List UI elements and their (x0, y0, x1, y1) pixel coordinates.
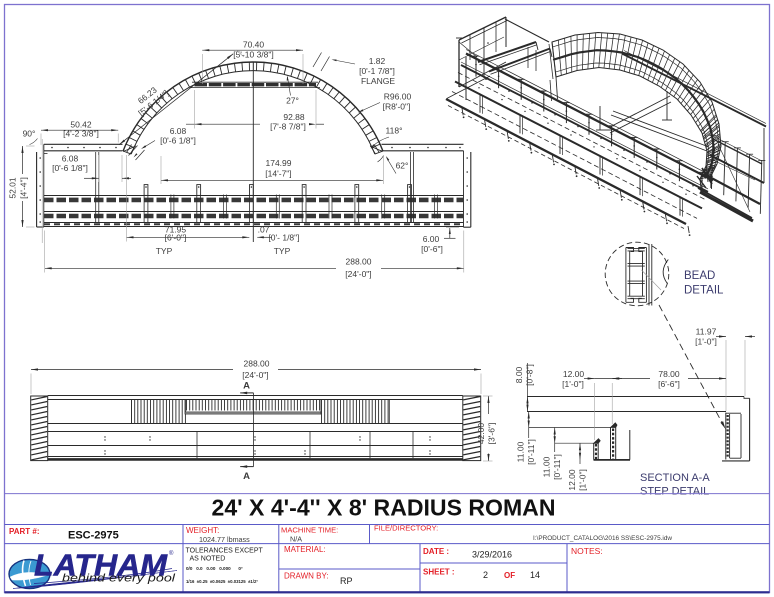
svg-text:[1'-0"]: [1'-0"] (562, 379, 584, 389)
svg-text:12.00: 12.00 (567, 469, 577, 491)
svg-text:WEIGHT:: WEIGHT: (186, 526, 219, 535)
svg-text:12.00: 12.00 (563, 369, 585, 379)
svg-text:TYP: TYP (274, 246, 291, 256)
svg-text:[24'-0"]: [24'-0"] (242, 370, 268, 380)
svg-text:288.00: 288.00 (244, 358, 270, 368)
svg-text:R96.00: R96.00 (384, 92, 412, 102)
svg-text:TYP: TYP (156, 246, 173, 256)
svg-text:42.00: 42.00 (476, 423, 486, 445)
svg-text:[0'-11"]: [0'-11"] (526, 439, 536, 465)
svg-text:[6'-6"]: [6'-6"] (658, 379, 680, 389)
svg-text:[1'-0"]: [1'-0"] (578, 469, 588, 491)
svg-text:11.00: 11.00 (516, 441, 526, 462)
svg-text:92.88: 92.88 (283, 112, 305, 122)
svg-text:[R8'-0"]: [R8'-0"] (383, 102, 411, 112)
svg-text:SECTION A-A: SECTION A-A (640, 472, 710, 484)
svg-text:SHEET :: SHEET : (423, 568, 455, 577)
svg-text:27°: 27° (286, 96, 299, 106)
svg-text:®: ® (169, 550, 174, 557)
svg-text:A: A (243, 380, 250, 391)
svg-text:52.01: 52.01 (8, 177, 18, 199)
svg-text:behind every pool: behind every pool (62, 573, 176, 585)
svg-text:24' X 4'-4'' X 8' RADIUS ROMAN: 24' X 4'-4'' X 8' RADIUS ROMAN (212, 495, 556, 521)
svg-text:N/A: N/A (290, 535, 302, 544)
svg-text:90°: 90° (23, 129, 36, 139)
svg-text:OF: OF (504, 571, 515, 580)
svg-text:[0'-6"]: [0'-6"] (421, 244, 443, 254)
svg-text:PART #:: PART #: (9, 527, 40, 536)
svg-text:[0'-1 7/8"]: [0'-1 7/8"] (359, 66, 395, 76)
svg-text:NOTES:: NOTES: (571, 546, 603, 556)
svg-text:288.00: 288.00 (346, 257, 372, 267)
svg-text:DETAIL: DETAIL (684, 285, 724, 297)
svg-text:[6'-0"]: [6'-0"] (165, 233, 187, 243)
svg-text:[5'-10 3/8"]: [5'-10 3/8"] (233, 49, 274, 59)
svg-text:DRAWN BY:: DRAWN BY: (284, 572, 329, 581)
svg-text:78.00: 78.00 (658, 369, 680, 379)
svg-text:6.00: 6.00 (423, 234, 440, 244)
svg-text:[7'-8 7/8"]: [7'-8 7/8"] (270, 122, 306, 132)
svg-text:62°: 62° (396, 161, 409, 171)
svg-text:14: 14 (530, 570, 540, 580)
svg-text:AS NOTED: AS NOTED (190, 556, 226, 563)
svg-text:MATERIAL:: MATERIAL: (284, 545, 326, 554)
svg-text:MACHINE TIME:: MACHINE TIME: (281, 526, 338, 535)
svg-text:[0'- 1/8"]: [0'- 1/8"] (268, 233, 299, 243)
svg-text:[0'-8"]: [0'-8"] (525, 364, 535, 386)
svg-text:RP: RP (340, 576, 353, 586)
svg-text:[1'-0"]: [1'-0"] (695, 336, 717, 346)
svg-text:70.40: 70.40 (243, 40, 265, 50)
svg-text:FILE/DIRECTORY:: FILE/DIRECTORY: (374, 524, 438, 533)
svg-text:174.99: 174.99 (266, 158, 292, 168)
svg-text:BEAD: BEAD (684, 270, 715, 282)
svg-text:2: 2 (483, 570, 488, 580)
svg-text:[4'-4"]: [4'-4"] (19, 177, 29, 199)
svg-text:1.82: 1.82 (369, 56, 386, 66)
svg-text:0/0 0.0 0.00 0.000: 0/0 0.0 0.00 0.000 0° (186, 566, 243, 571)
svg-text:FLANGE: FLANGE (361, 76, 395, 86)
svg-text:TOLERANCES EXCEPT: TOLERANCES EXCEPT (186, 548, 264, 555)
svg-text:11.00: 11.00 (542, 456, 552, 477)
svg-text:118°: 118° (386, 126, 403, 136)
svg-text:8.00: 8.00 (514, 366, 524, 383)
svg-text:11.97: 11.97 (696, 326, 717, 336)
svg-text:[24'-0"]: [24'-0"] (345, 269, 371, 279)
svg-text:DATE :: DATE : (423, 547, 449, 556)
svg-text:A: A (243, 471, 250, 482)
svg-text:ESC-2975: ESC-2975 (68, 530, 119, 542)
svg-text:3/29/2016: 3/29/2016 (472, 550, 512, 560)
svg-text:STEP DETAIL: STEP DETAIL (640, 486, 709, 498)
svg-text:[4'-2 3/8"]: [4'-2 3/8"] (63, 129, 99, 139)
svg-text:[3'-6"]: [3'-6"] (487, 423, 497, 445)
svg-text:[0'-6 1/8"]: [0'-6 1/8"] (52, 163, 88, 173)
svg-text:1/16 ±0.25 ±0.0625 ±0.03125: 1/16 ±0.25 ±0.0625 ±0.03125 ±1/2° (186, 579, 258, 584)
svg-text:1024.77 lbmass: 1024.77 lbmass (199, 535, 250, 544)
svg-text:I:\PRODUCT_CATALOG\2016 SS\ESC: I:\PRODUCT_CATALOG\2016 SS\ESC-2975.idw (533, 535, 672, 542)
svg-text:[14'-7"]: [14'-7"] (265, 168, 291, 178)
svg-text:[0'-11"]: [0'-11"] (552, 454, 562, 480)
svg-text:[0'-6 1/8"]: [0'-6 1/8"] (160, 136, 196, 146)
